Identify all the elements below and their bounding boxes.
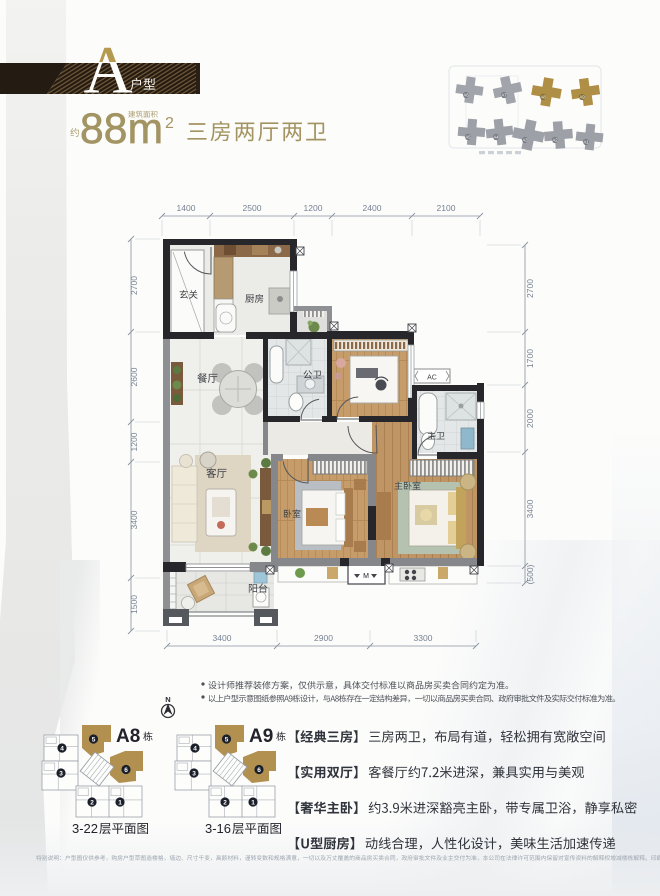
svg-text:2: 2 xyxy=(223,799,227,806)
svg-text:3: 3 xyxy=(192,770,196,777)
svg-text:(500): (500) xyxy=(525,564,535,584)
svg-text:1700: 1700 xyxy=(525,349,535,368)
svg-text:2: 2 xyxy=(165,115,174,132)
svg-text:A4: A4 xyxy=(493,135,499,140)
svg-text:1: 1 xyxy=(251,799,255,806)
svg-text:A2: A2 xyxy=(552,138,558,143)
svg-text:A6: A6 xyxy=(463,93,469,98)
svg-text:2100: 2100 xyxy=(437,203,456,213)
svg-text:3: 3 xyxy=(59,770,63,777)
svg-text:2900: 2900 xyxy=(314,633,333,643)
svg-text:A: A xyxy=(83,32,132,108)
svg-text:2700: 2700 xyxy=(525,279,535,298)
svg-text:1200: 1200 xyxy=(129,432,139,451)
svg-text:1200: 1200 xyxy=(304,203,323,213)
svg-text:A5: A5 xyxy=(465,135,471,140)
svg-text:2500: 2500 xyxy=(243,203,262,213)
svg-text:3400: 3400 xyxy=(213,633,232,643)
svg-text:4: 4 xyxy=(60,745,64,752)
svg-text:3-16: 3-16 xyxy=(205,821,231,836)
svg-text:88m: 88m xyxy=(80,106,163,153)
svg-text:A8: A8 xyxy=(116,726,140,747)
svg-text:4: 4 xyxy=(193,745,197,752)
svg-text:AC: AC xyxy=(427,375,437,382)
svg-text:5: 5 xyxy=(92,736,96,743)
svg-text:6: 6 xyxy=(257,767,261,774)
svg-text:2: 2 xyxy=(90,799,94,806)
svg-text:1: 1 xyxy=(118,799,122,806)
svg-text:5: 5 xyxy=(225,736,229,743)
svg-text:3400: 3400 xyxy=(129,510,139,529)
svg-text:M: M xyxy=(363,573,369,580)
svg-text:A9: A9 xyxy=(579,95,585,100)
svg-text:A3: A3 xyxy=(522,138,528,143)
svg-text:A8: A8 xyxy=(540,95,546,100)
svg-text:3300: 3300 xyxy=(414,633,433,643)
svg-text:1500: 1500 xyxy=(129,595,139,614)
svg-text:A1: A1 xyxy=(583,140,589,145)
svg-text:3400: 3400 xyxy=(525,499,535,518)
svg-text:2000: 2000 xyxy=(525,409,535,428)
svg-text:3-22: 3-22 xyxy=(72,821,98,836)
svg-text:N: N xyxy=(165,695,170,704)
svg-text:2400: 2400 xyxy=(363,203,382,213)
svg-text:1400: 1400 xyxy=(177,203,196,213)
svg-text:A7: A7 xyxy=(501,93,507,98)
svg-text:2600: 2600 xyxy=(129,367,139,386)
svg-text:A9: A9 xyxy=(249,726,273,747)
svg-text:6: 6 xyxy=(124,767,128,774)
svg-text:2700: 2700 xyxy=(129,276,139,295)
